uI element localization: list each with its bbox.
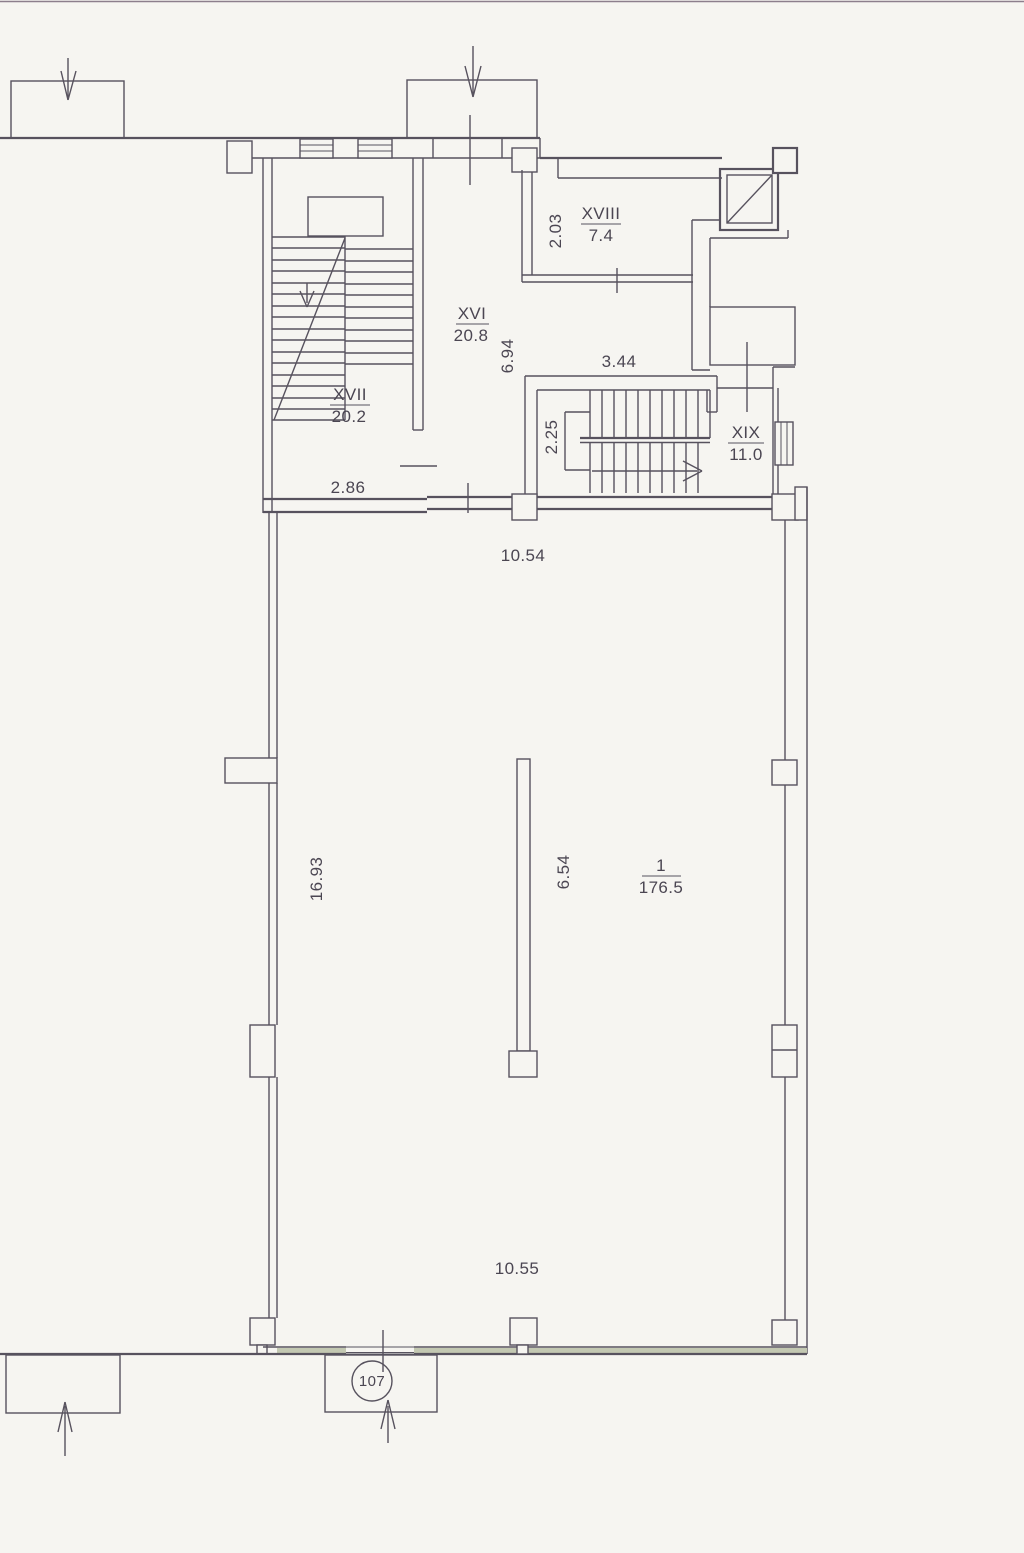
corner-wall — [795, 487, 807, 520]
canopy-north-left — [11, 58, 124, 138]
floor-plan-drawing: XVI 20.8 XVII 20.2 XVIII 7.4 XIX 11.0 1 … — [0, 0, 1024, 1553]
room-xviii-area: 7.4 — [589, 226, 614, 245]
service-shaft-room — [710, 307, 795, 412]
room-xvii-numeral: XVII — [333, 385, 367, 404]
dim-10-54: 10.54 — [501, 546, 546, 565]
column — [510, 1318, 537, 1345]
dim-6-94: 6.94 — [498, 339, 517, 374]
room-1-numeral: 1 — [656, 856, 666, 875]
main-room-bottom-wall — [0, 1318, 807, 1354]
entrance-arrow-down-icon — [465, 46, 481, 97]
floor-plan-page: XVI 20.8 XVII 20.2 XVIII 7.4 XIX 11.0 1 … — [0, 0, 1024, 1553]
column — [772, 494, 798, 520]
stair-treads-right-flight — [345, 249, 413, 364]
room-xvi-numeral: XVI — [458, 304, 487, 323]
room-xix-numeral: XIX — [732, 423, 761, 442]
room-xvi-area: 20.8 — [454, 326, 489, 345]
main-room-walls — [225, 487, 807, 1354]
room-marker-number: 107 — [359, 1373, 385, 1390]
pilaster — [250, 1025, 275, 1077]
pilaster — [225, 758, 277, 783]
entrance-arrow-down-icon — [61, 58, 76, 100]
facade-window-2 — [358, 139, 392, 158]
elevator-lobby-walls — [692, 220, 788, 370]
elevator-shaft — [720, 148, 797, 230]
stair-risers-top — [590, 390, 710, 438]
dim-2-03: 2.03 — [546, 214, 565, 249]
room-1-area: 176.5 — [639, 878, 684, 897]
dim-16-93: 16.93 — [307, 857, 326, 902]
pilaster — [772, 1320, 797, 1345]
labels: XVI 20.8 XVII 20.2 XVIII 7.4 XIX 11.0 1 … — [307, 204, 764, 1390]
facade-window-1 — [300, 139, 333, 158]
main-room-top-wall — [427, 483, 807, 520]
dim-2-25: 2.25 — [542, 420, 561, 455]
dim-10-55: 10.55 — [495, 1259, 540, 1278]
entrance-south-left — [6, 1355, 120, 1456]
door-opening — [346, 1344, 414, 1354]
column — [512, 494, 537, 520]
stairwell-xvii — [263, 158, 437, 513]
stair-direction-arrow-down-icon — [300, 283, 314, 307]
pilaster — [772, 760, 797, 785]
pilaster — [772, 1025, 797, 1077]
dim-6-54: 6.54 — [554, 855, 573, 890]
corner-column — [773, 148, 797, 173]
entrance-arrow-up-icon — [381, 1400, 395, 1443]
room-xvii-area: 20.2 — [332, 407, 367, 426]
door-opening — [618, 277, 643, 282]
stair-risers-bottom — [590, 442, 698, 493]
entrance-arrow-up-icon — [58, 1402, 72, 1456]
dim-2-86: 2.86 — [331, 478, 366, 497]
interior-partition — [509, 759, 537, 1077]
door-leaf-symbol — [775, 422, 793, 465]
pilaster — [250, 1318, 275, 1345]
dim-3-44: 3.44 — [602, 352, 637, 371]
room-xix-area: 11.0 — [729, 445, 762, 464]
room-xviii-numeral: XVIII — [582, 204, 621, 223]
